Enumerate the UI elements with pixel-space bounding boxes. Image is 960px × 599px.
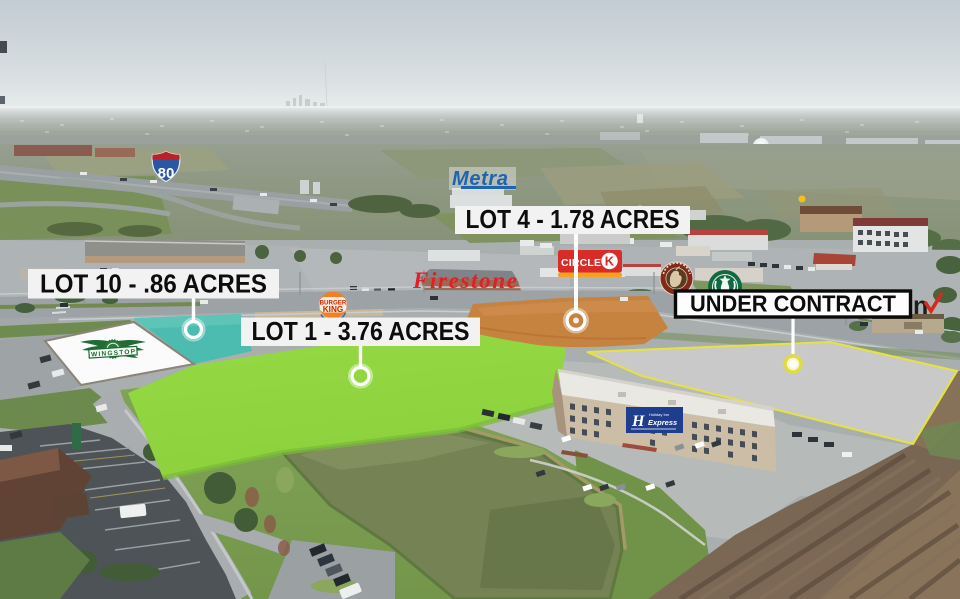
- svg-text:K: K: [605, 254, 615, 269]
- svg-text:Firestone: Firestone: [412, 268, 517, 293]
- svg-text:LOT 1 - 3.76 ACRES: LOT 1 - 3.76 ACRES: [252, 316, 470, 346]
- svg-text:Express: Express: [648, 418, 677, 427]
- svg-text:H: H: [631, 413, 645, 430]
- svg-text:80: 80: [158, 165, 175, 182]
- svg-text:UNDER CONTRACT: UNDER CONTRACT: [690, 291, 897, 317]
- svg-text:Holiday Inn: Holiday Inn: [649, 412, 669, 417]
- svg-text:LOT 10 - .86 ACRES: LOT 10 - .86 ACRES: [40, 269, 267, 299]
- svg-text:CIRCLE: CIRCLE: [561, 257, 601, 269]
- svg-text:LOT 4 - 1.78 ACRES: LOT 4 - 1.78 ACRES: [466, 204, 680, 234]
- svg-text:KING: KING: [323, 305, 343, 314]
